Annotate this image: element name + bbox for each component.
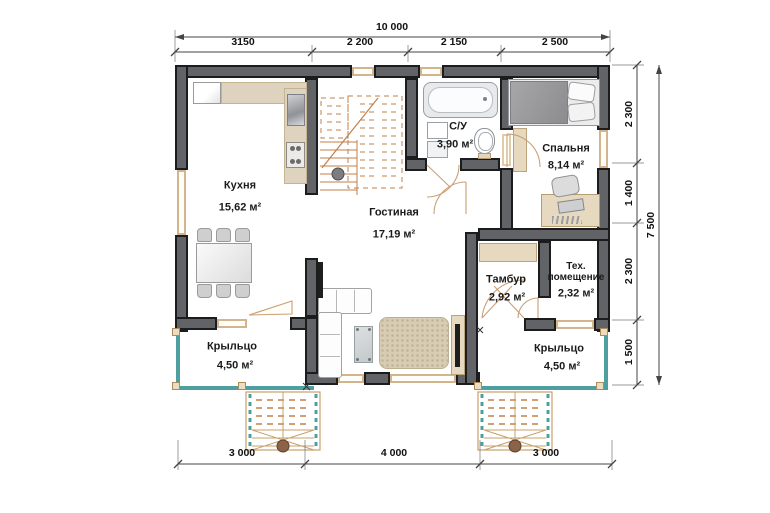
tv-living (455, 324, 460, 367)
room-area-tech: 2,32 м² (558, 287, 594, 300)
room-area-porch-left: 4,50 м² (217, 359, 253, 372)
sofa-side (318, 312, 342, 378)
wall-exterior-right-lower (597, 168, 610, 332)
dining-table (196, 243, 252, 283)
porch-steps-left (246, 392, 320, 452)
railing-post (238, 382, 246, 390)
wall-exterior-top-mid (374, 65, 420, 78)
wall-bedroom-bottom (478, 228, 610, 241)
sofa-seam (336, 290, 337, 312)
wall-house-bottom-pier1 (524, 318, 556, 331)
wall-exterior-top-right (442, 65, 610, 78)
wall-exterior-left-upper (175, 65, 188, 170)
window-bedroom-right (599, 130, 608, 168)
wall-exterior-top-left (175, 65, 352, 78)
wall-kitchen-bottom-left (175, 317, 217, 330)
tambour-bench (479, 243, 537, 262)
railing-post (596, 382, 604, 390)
dim-top-seg-4: 2 500 (542, 36, 568, 48)
room-label-bathroom: С/У (449, 120, 467, 133)
dim-right-seg-3: 2 300 (623, 258, 635, 284)
sofa-seam (320, 356, 340, 357)
wall-bath-bottom-right (460, 158, 500, 171)
dim-right-seg-2: 1 400 (623, 180, 635, 206)
room-area-tambour: 2,92 м² (489, 291, 525, 304)
room-label-tech-2: помещение (548, 272, 605, 284)
room-area-living: 17,19 м² (373, 228, 415, 241)
railing-porch-left-side (176, 332, 180, 388)
toilet-cistern (478, 153, 491, 159)
dim-right-total: 7 500 (645, 212, 657, 238)
staircase (320, 96, 402, 195)
dim-top-seg-3: 2 150 (441, 36, 467, 48)
room-label-porch-left: Крыльцо (207, 340, 257, 353)
sofa-top (318, 288, 372, 314)
wall-tambour-left (465, 232, 478, 385)
wardrobe (513, 128, 527, 172)
wall-bath-left (405, 78, 418, 158)
railing-post (474, 382, 482, 390)
wall-kitchen-living (305, 258, 318, 317)
railing-porch-right-bottom (480, 386, 608, 390)
dim-top-seg-1: 3150 (231, 36, 254, 48)
dining-chair (216, 284, 231, 298)
threshold-bedroom-door (502, 134, 511, 166)
room-area-bedroom: 8,14 м² (548, 159, 584, 172)
railing-post (600, 328, 608, 336)
window-top-stairs (352, 67, 374, 76)
bed-blanket (510, 81, 568, 124)
room-area-kitchen: 15,62 м² (219, 201, 261, 214)
dim-bottom-seg-1: 3 000 (229, 447, 255, 459)
dining-chair (197, 228, 212, 242)
rug (379, 317, 449, 369)
dim-top-seg-2: 2 200 (347, 36, 373, 48)
dining-chair (235, 228, 250, 242)
room-label-living: Гостиная (369, 206, 419, 219)
dim-top-total: 10 000 (376, 21, 408, 33)
railing-post (172, 382, 180, 390)
floor-plan-canvas: Кухня 15,62 м² Гостиная 17,19 м² С/У 3,9… (0, 0, 770, 513)
window-kitchen-bottom (217, 319, 247, 328)
dim-bottom-seg-2: 4 000 (381, 447, 407, 459)
desk-rug-lines (552, 216, 582, 224)
window-top-bathroom (420, 67, 442, 76)
window-tech-bottom (556, 320, 594, 329)
sofa-seam (320, 334, 340, 335)
room-area-porch-right: 4,50 м² (544, 360, 580, 373)
wall-bath-bottom-left (405, 158, 427, 171)
fridge (193, 82, 221, 104)
coffee-table (354, 326, 373, 363)
room-label-bedroom: Спальня (542, 142, 590, 155)
room-label-kitchen: Кухня (224, 179, 256, 192)
room-area-bathroom: 3,90 м² (437, 138, 473, 151)
dining-chair (216, 228, 231, 242)
dim-right-seg-1: 2 300 (623, 101, 635, 127)
washbasin (427, 122, 448, 139)
window-living-bottom-2 (390, 374, 456, 383)
dim-bottom-seg-3: 3 000 (533, 447, 559, 459)
room-label-porch-right: Крыльцо (534, 342, 584, 355)
railing-post (172, 328, 180, 336)
tv-kitchen-wall (318, 262, 323, 298)
bed-pillow (567, 102, 596, 123)
dining-chair (235, 284, 250, 298)
sofa-seam (354, 290, 355, 312)
window-kitchen-left (177, 170, 186, 235)
toilet (474, 128, 495, 154)
porch-steps-right (478, 392, 552, 452)
wall-living-ext-bottom-b (364, 372, 390, 385)
bathtub (423, 82, 498, 118)
dim-right-seg-4: 1 500 (623, 339, 635, 365)
dining-chair (197, 284, 212, 298)
stove (286, 142, 305, 168)
bed-pillow (567, 81, 596, 103)
wall-tambour-tech-divider (538, 241, 551, 298)
room-label-tambour: Тамбур (486, 273, 526, 286)
kitchen-sink (287, 94, 305, 126)
railing-porch-right-side (604, 332, 608, 388)
